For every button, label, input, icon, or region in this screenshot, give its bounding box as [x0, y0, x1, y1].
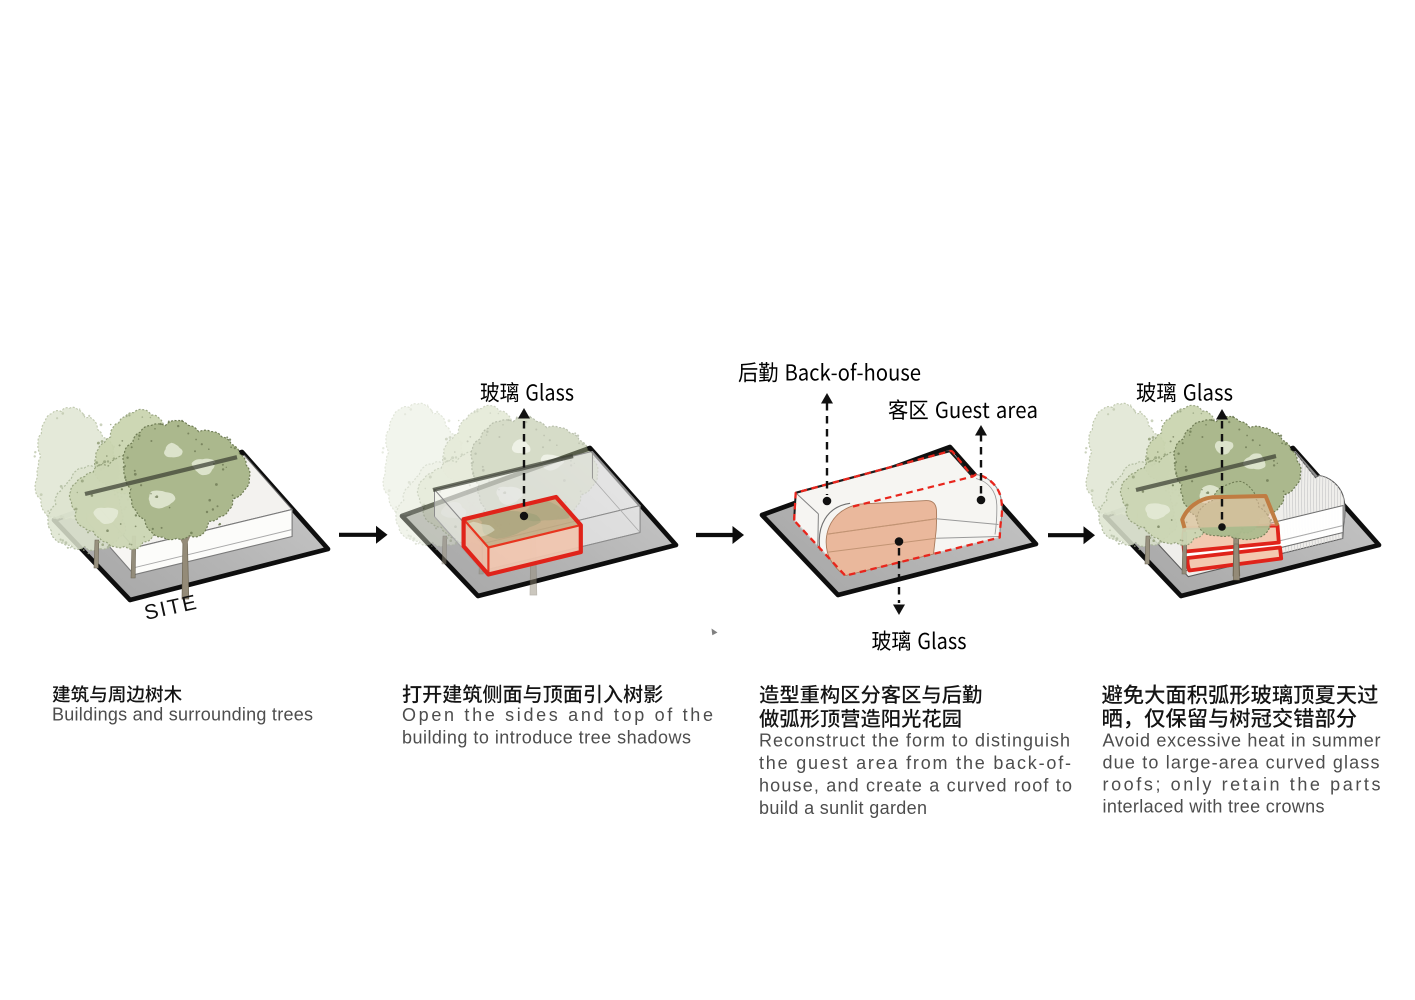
svg-text:Buildings and surrounding tree: Buildings and surrounding trees — [52, 705, 313, 725]
svg-text:building to introduce tree sha: building to introduce tree shadows — [402, 728, 691, 748]
svg-text:the guest area from the back-o: the guest area from the back-of- — [759, 753, 1071, 773]
svg-text:Open the sides and top of the: Open the sides and top of the — [402, 705, 713, 725]
svg-text:Reconstruct the form to distin: Reconstruct the form to distinguish — [759, 731, 1070, 751]
svg-text:Avoid excessive heat in summer: Avoid excessive heat in summer — [1103, 731, 1381, 751]
svg-text:build a sunlit garden: build a sunlit garden — [759, 798, 927, 818]
svg-text:due to large-area curved glass: due to large-area curved glass — [1103, 753, 1380, 773]
svg-text:house, and create a curved roo: house, and create a curved roof to — [759, 776, 1072, 796]
svg-text:interlaced with tree crowns: interlaced with tree crowns — [1103, 797, 1325, 817]
